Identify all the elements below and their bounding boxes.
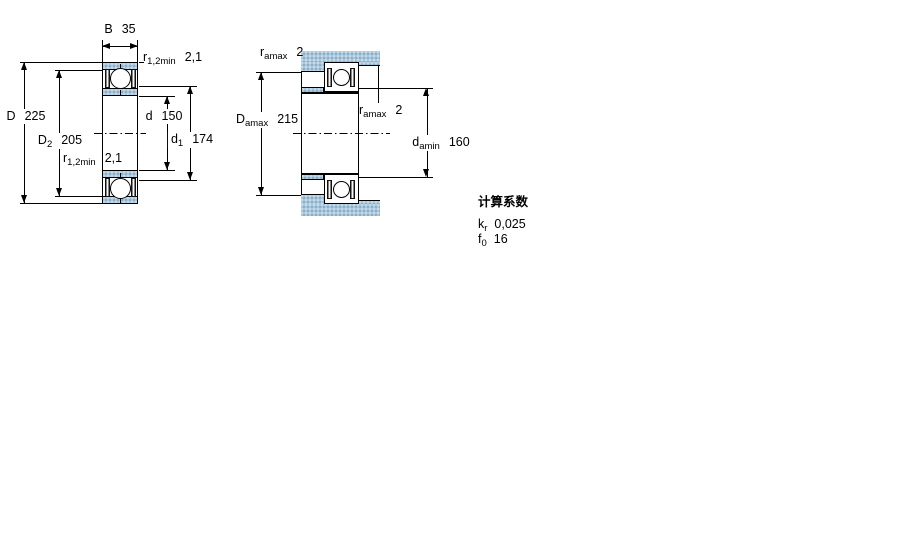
extension-line-D: [20, 203, 102, 204]
ball-top: [110, 68, 131, 89]
arrowhead: [423, 88, 429, 96]
dim-symbol: d: [412, 135, 419, 149]
arrowhead: [102, 43, 110, 49]
dim-value: 150: [162, 109, 183, 123]
dim-subscript: amin: [419, 141, 440, 152]
ball-centerline-tick: [120, 64, 121, 69]
dim-value: 2,1: [185, 50, 202, 64]
ball-top-right-figure: [333, 69, 350, 86]
extension-line-d: [139, 96, 175, 97]
ball-centerline-tick: [120, 90, 121, 95]
seal-bottom-left-right-figure: [327, 180, 332, 199]
housing-block-top: [301, 51, 380, 62]
dim-label-r12min-top: r1,2min2,1: [143, 50, 202, 66]
extension-line-D: [20, 62, 102, 63]
housing-block-bottom: [301, 204, 380, 216]
dim-subscript: amax: [363, 109, 386, 120]
bearing-dimension-drawing: B35 r1,2min2,1 D225 D2205 r1,2min2,1 d15…: [0, 0, 900, 560]
shaft-shoulder-bottom: [301, 174, 324, 180]
extension-line-D2: [55, 196, 102, 197]
dim-symbol: D: [236, 112, 245, 126]
dim-value: 225: [25, 109, 46, 123]
housing-shoulder-bottom-left: [301, 194, 324, 204]
ball-bottom: [110, 178, 131, 199]
seal-top-left-right-figure: [327, 68, 332, 87]
shaft-shoulder-top: [301, 87, 324, 93]
extension-line-d: [139, 170, 175, 171]
factor-value: 16: [494, 232, 508, 246]
arrowhead: [258, 187, 264, 195]
dim-label-B: B35: [104, 22, 135, 37]
dim-subscript: 1,2min: [147, 56, 176, 67]
centerline-left-figure: [94, 133, 146, 134]
dim-value: 160: [449, 135, 470, 149]
arrowhead: [258, 72, 264, 80]
extension-line-damin: [359, 177, 433, 178]
dim-label-D: D225: [4, 109, 49, 124]
dim-label-Damax: Damax215: [233, 112, 301, 128]
arrowhead: [21, 195, 27, 203]
housing-shoulder-bottom-right: [359, 200, 381, 204]
factor-kr: kr0,025: [478, 217, 526, 233]
dimension-line-Damax: [261, 72, 262, 195]
housing-shoulder-top-left: [301, 62, 324, 72]
arrowhead: [164, 162, 170, 170]
seal-bottom-left: [105, 178, 110, 197]
dimension-line-D: [24, 62, 25, 203]
arrowhead: [187, 172, 193, 180]
factor-subscript: 0: [481, 238, 486, 249]
dim-value: 2: [296, 45, 303, 59]
dim-value: 205: [61, 133, 82, 147]
dim-symbol: B: [104, 22, 112, 36]
arrowhead: [423, 169, 429, 177]
seal-bottom-right: [131, 178, 136, 197]
dim-value: 215: [277, 112, 298, 126]
seal-bottom-right-right-figure: [350, 180, 355, 199]
dim-value: 2: [395, 103, 402, 117]
factor-f0: f016: [478, 232, 508, 248]
dim-label-ramax-top: ramax2: [260, 45, 303, 61]
seal-top-right-right-figure: [350, 68, 355, 87]
dim-symbol: d: [171, 132, 178, 146]
dim-value: 35: [122, 22, 136, 36]
arrowhead: [187, 86, 193, 94]
arrowhead: [56, 70, 62, 78]
extension-line-D2: [55, 70, 102, 71]
dimension-line-damin: [427, 88, 428, 177]
ball-bottom-right-figure: [333, 181, 350, 198]
dim-label-damin: damin160: [409, 135, 472, 151]
arrowhead: [56, 188, 62, 196]
leader-line-ramax-mid: [378, 66, 379, 103]
factor-value: 0,025: [494, 217, 525, 231]
dim-value: 174: [192, 132, 213, 146]
ball-centerline-tick: [120, 199, 121, 204]
arrowhead: [130, 43, 138, 49]
dim-subscript: amax: [245, 118, 268, 129]
dim-label-r12min-bottom: r1,2min2,1: [63, 151, 122, 167]
seal-top-left: [105, 69, 110, 88]
dim-subscript: 1: [178, 138, 183, 149]
dim-subscript: 1,2min: [67, 157, 96, 168]
dim-symbol: D: [7, 109, 16, 123]
centerline-right-figure: [293, 133, 390, 134]
dim-subscript: amax: [264, 51, 287, 62]
dim-value: 2,1: [105, 151, 122, 165]
arrowhead: [21, 62, 27, 70]
dim-symbol: d: [146, 109, 153, 123]
ball-centerline-tick: [120, 173, 121, 178]
dim-label-D2: D2205: [35, 133, 85, 149]
seal-top-right: [131, 69, 136, 88]
dim-subscript: 2: [47, 139, 52, 150]
arrowhead: [164, 96, 170, 104]
calculation-factors-title: 计算系数: [478, 195, 528, 210]
housing-shoulder-top-right: [359, 62, 381, 66]
extension-line-damin: [359, 88, 433, 89]
dim-symbol: D: [38, 133, 47, 147]
dim-label-d1: d1174: [168, 132, 216, 148]
dim-label-ramax-mid: ramax2: [359, 103, 402, 119]
dim-label-d: d150: [143, 109, 186, 124]
